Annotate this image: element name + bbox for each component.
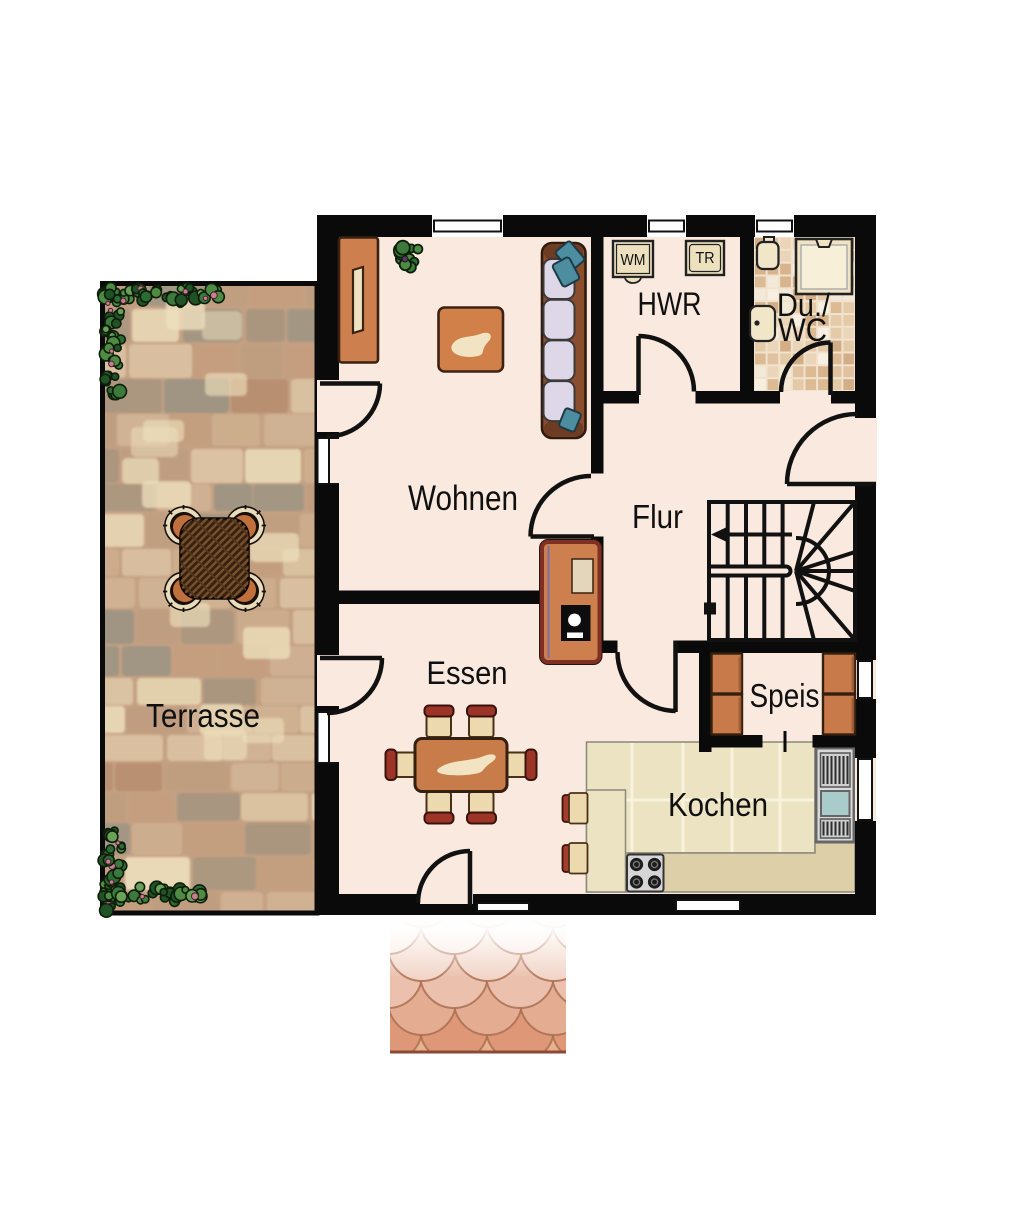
svg-text:HWR: HWR [638,286,702,322]
svg-text:Essen: Essen [427,655,508,691]
svg-text:TR: TR [696,250,715,267]
svg-text:Wohnen: Wohnen [408,479,518,518]
svg-text:Flur: Flur [632,498,683,535]
svg-text:WC: WC [778,312,827,348]
svg-text:Kochen: Kochen [668,786,768,823]
svg-text:Terrasse: Terrasse [146,697,260,734]
svg-text:Speis: Speis [750,677,820,714]
svg-text:WM: WM [621,252,646,269]
